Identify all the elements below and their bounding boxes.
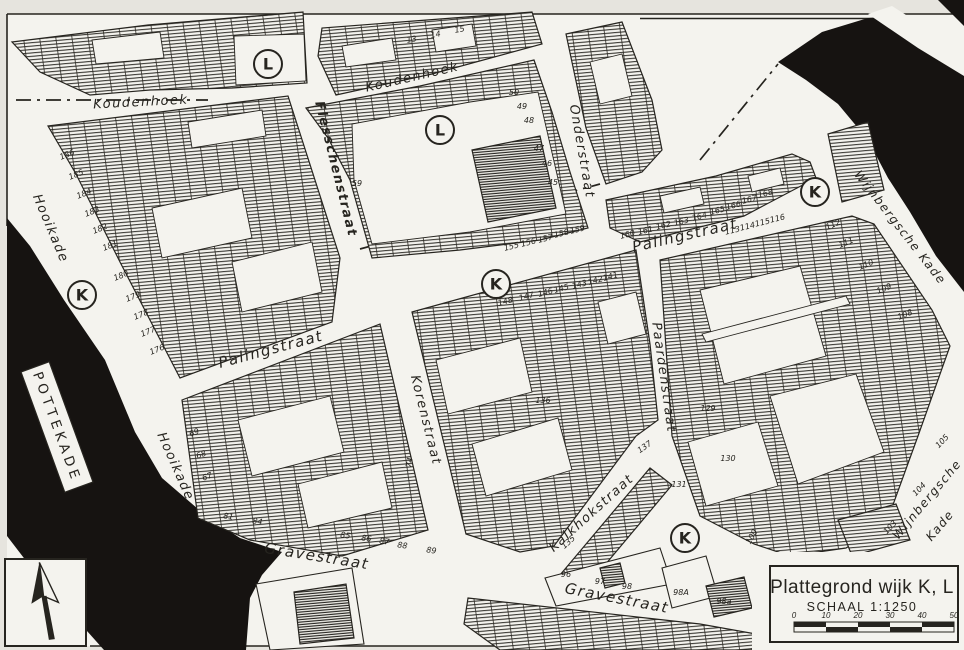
parcel-number-81: 81 — [223, 511, 234, 521]
parcel-number-89: 89 — [426, 545, 437, 555]
parcel-number-15: 15 — [454, 24, 466, 35]
parcel-number-98: 98 — [622, 582, 632, 591]
parcel-number-129: 129 — [700, 404, 715, 413]
parcel-number-85: 85 — [340, 530, 351, 540]
parcel-number-46: 46 — [542, 159, 552, 168]
scanned-district-map: POTTEKADE Plattegrond wijk K, L SCHAAL 1… — [0, 0, 964, 650]
building-south-center — [294, 584, 354, 644]
parcel-number-88: 88 — [397, 540, 408, 550]
scale-tick-10: 10 — [822, 611, 831, 620]
parcel-number-50: 50 — [509, 88, 519, 97]
district-marker-k: K — [801, 178, 829, 206]
north-arrow-box — [5, 559, 86, 646]
district-marker-letter: K — [679, 529, 692, 548]
district-marker-letter: L — [263, 55, 273, 74]
district-marker-l: L — [254, 50, 282, 78]
parcel-number-97: 97 — [595, 577, 606, 586]
district-marker-k: K — [671, 524, 699, 552]
scale-tick-40: 40 — [918, 611, 927, 620]
scale-tick-30: 30 — [886, 611, 895, 620]
title-box: Plattegrond wijk K, L SCHAAL 1:1250 0102… — [752, 552, 964, 650]
parcel-number-48: 48 — [524, 116, 534, 125]
scale-tick-20: 20 — [853, 611, 863, 620]
district-marker-letter: K — [490, 275, 503, 294]
parcel-number-47: 47 — [534, 144, 545, 153]
parcel-number-59: 59 — [352, 179, 362, 188]
district-marker-l: L — [426, 116, 454, 144]
district-marker-letter: L — [435, 121, 445, 140]
scale-tick-0: 0 — [792, 611, 797, 620]
parcel-number-131: 131 — [671, 480, 686, 489]
parcel-number-49: 49 — [517, 102, 527, 111]
map-title: Plattegrond wijk K, L — [770, 577, 954, 598]
parcel-number-84: 84 — [252, 516, 263, 526]
parcel-number-98A: 98A — [673, 588, 689, 597]
parcel-number-98a: 98a — [716, 597, 731, 606]
parcel-number-86: 86 — [361, 533, 372, 543]
parcel-number-13: 13 — [406, 34, 418, 45]
parcel-number-130: 130 — [720, 454, 735, 463]
parcel-number-45: 45 — [548, 178, 558, 187]
district-marker-k: K — [68, 281, 96, 309]
city-map: POTTEKADE Plattegrond wijk K, L SCHAAL 1… — [0, 0, 964, 650]
district-marker-letter: K — [809, 183, 822, 202]
scale-tick-50: 50 — [950, 611, 959, 620]
district-marker-letter: K — [76, 286, 89, 305]
parcel-number-14: 14 — [430, 29, 442, 40]
district-marker-k: K — [482, 270, 510, 298]
parcel-number-96: 96 — [561, 570, 571, 579]
parcel-number-136: 136 — [535, 396, 550, 405]
